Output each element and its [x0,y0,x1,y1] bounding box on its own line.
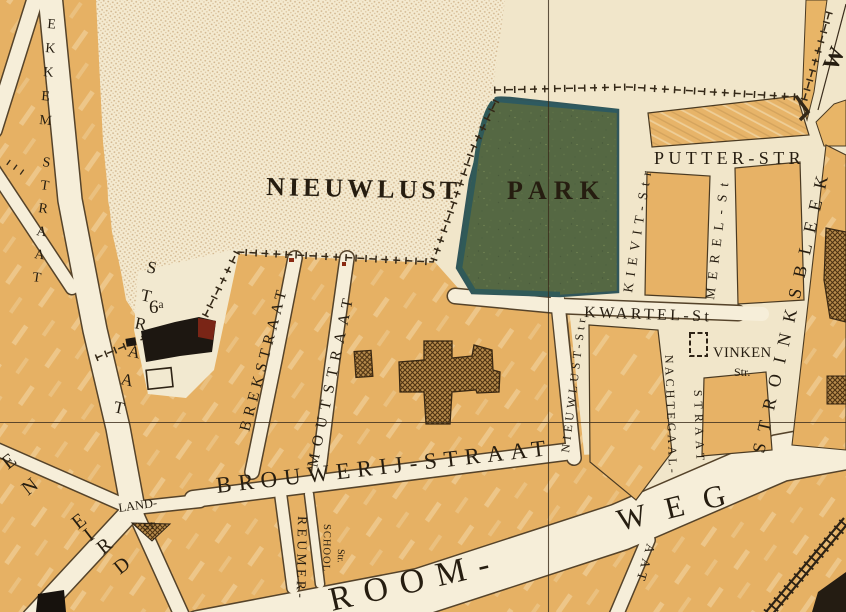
svg-text:E: E [47,17,57,33]
svg-text:K: K [43,65,54,81]
svg-text:ST.: ST. [143,520,158,533]
svg-text:NIEUWLUST: NIEUWLUST [266,172,462,205]
svg-text:Str.: Str. [734,365,750,379]
svg-text:K: K [45,41,56,57]
svg-text:6ᵃ: 6ᵃ [149,297,164,318]
svg-text:Str.: Str. [335,549,346,563]
svg-text:STRAAT: STRAAT [691,390,708,466]
svg-text:PUTTER-STR: PUTTER-STR [654,148,805,168]
svg-text:E: E [41,89,51,105]
svg-text:VINKEN: VINKEN [713,345,772,361]
svg-text:PARK: PARK [507,176,607,205]
svg-text:SCHOOL: SCHOOL [320,524,332,572]
svg-text:M: M [39,113,53,129]
svg-text:REUMER-: REUMER- [294,516,310,601]
